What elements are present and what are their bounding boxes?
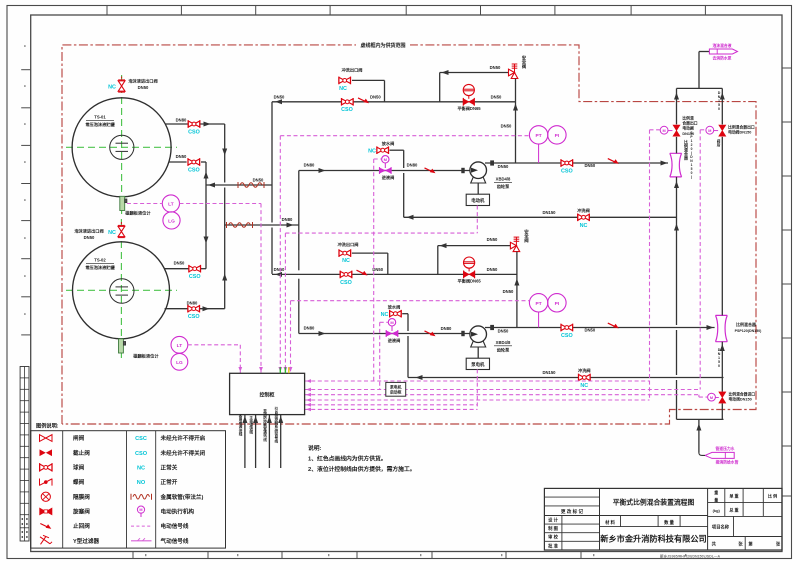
svg-text:气动信号线: 气动信号线	[160, 537, 189, 545]
svg-text:更 改 标 记: 更 改 标 记	[561, 508, 584, 515]
svg-text:M: M	[708, 129, 711, 133]
svg-text:平衡式比例混合装置流程图: 平衡式比例混合装置流程图	[613, 498, 695, 507]
svg-text:DN150: DN150	[542, 210, 556, 215]
svg-text:DN80: DN80	[187, 300, 198, 305]
svg-text:PT: PT	[536, 301, 542, 307]
svg-text:比例混合器: 比例混合器	[683, 139, 689, 161]
svg-text:XBD4/8: XBD4/8	[496, 177, 511, 182]
svg-text:至消防控制室通讯线: 至消防控制室通讯线	[262, 408, 267, 442]
svg-text:常压泡沫液贮罐: 常压泡沫液贮罐	[85, 121, 115, 128]
svg-text:管道压力水: 管道压力水	[716, 446, 735, 451]
svg-text:接消防给水管: 接消防给水管	[715, 460, 739, 465]
svg-text:PSP120(DN150): PSP120(DN150)	[735, 329, 763, 333]
svg-text:NC: NC	[381, 312, 389, 318]
svg-text:NC: NC	[108, 230, 116, 236]
svg-text:PT: PT	[536, 133, 542, 139]
svg-text:泡沫液进出口阀: 泡沫液进出口阀	[74, 228, 103, 235]
svg-text:Y型过滤器: Y型过滤器	[73, 537, 100, 545]
svg-text:CSO: CSO	[188, 168, 200, 174]
svg-text:备用电源进线: 备用电源进线	[238, 413, 243, 436]
svg-text:DN50: DN50	[370, 95, 381, 100]
svg-text:DN50: DN50	[487, 237, 498, 242]
svg-text:DN80: DN80	[282, 217, 293, 222]
svg-text:TS-01: TS-01	[94, 115, 106, 120]
svg-text:隔膜阀: 隔膜阀	[73, 493, 90, 501]
svg-text:CSO: CSO	[188, 314, 200, 320]
svg-text:DN50: DN50	[491, 94, 502, 99]
svg-text:DN150: DN150	[682, 132, 694, 136]
svg-text:冲洗阀: 冲洗阀	[578, 367, 591, 374]
svg-text:M: M	[710, 396, 713, 400]
svg-text:设 计: 设 计	[548, 517, 558, 524]
svg-text:LG: LG	[176, 360, 183, 366]
svg-text:说明:: 说明:	[308, 444, 322, 452]
svg-text:闸阀: 闸阀	[73, 434, 85, 442]
svg-text:安全阀: 安全阀	[524, 228, 530, 244]
svg-text:DN80: DN80	[304, 163, 315, 168]
svg-text:引自动控制系统信号线: 引自动控制系统信号线	[274, 406, 279, 443]
svg-text:材 料: 材 料	[605, 519, 615, 526]
svg-text:CSC: CSC	[135, 436, 147, 442]
svg-text:球阀: 球阀	[73, 464, 85, 472]
svg-text:NC: NC	[580, 223, 588, 229]
svg-text:DN50: DN50	[501, 124, 512, 129]
svg-text:电动阀DN150: 电动阀DN150	[729, 396, 752, 401]
svg-text:齿轮泵: 齿轮泵	[497, 347, 510, 354]
svg-text:蝶阀: 蝶阀	[73, 478, 85, 486]
svg-text:审 校: 审 校	[548, 534, 558, 541]
svg-text:NC: NC	[368, 149, 376, 155]
svg-text:泵电机: 泵电机	[471, 361, 485, 368]
svg-text:批 准: 批 准	[548, 542, 558, 549]
svg-text:DN50: DN50	[84, 235, 95, 240]
svg-text:DN50: DN50	[253, 178, 264, 183]
svg-text:DN50: DN50	[503, 289, 514, 294]
svg-text:主电源进线: 主电源进线	[248, 415, 253, 434]
svg-text:电动机: 电动机	[471, 197, 485, 204]
svg-text:重: 重	[714, 490, 718, 495]
svg-text:DN150: DN150	[717, 348, 721, 368]
svg-text:新乡市金升消防科技有限公司: 新乡市金升消防科技有限公司	[600, 534, 706, 544]
svg-text:泡沫液进出口阀: 泡沫液进出口阀	[128, 78, 157, 85]
svg-text:CSO: CSO	[341, 107, 353, 113]
svg-text:冲洗阀: 冲洗阀	[577, 207, 590, 214]
svg-text:平衡阀DN65: 平衡阀DN65	[457, 105, 481, 112]
svg-text:LT: LT	[177, 343, 183, 349]
svg-text:比例混合器进口: 比例混合器进口	[729, 391, 756, 396]
svg-text:DN150: DN150	[717, 91, 721, 111]
svg-text:正常开: 正常开	[161, 478, 178, 486]
svg-text:去消防水泵: 去消防水泵	[713, 56, 732, 61]
svg-text:第: 第	[748, 541, 753, 548]
svg-text:未经允许不得开启: 未经允许不得开启	[161, 434, 206, 442]
svg-text:DN50: DN50	[176, 154, 187, 159]
svg-text:TS-02: TS-02	[94, 258, 106, 263]
svg-text:DN50: DN50	[584, 163, 595, 168]
svg-text:比 例: 比 例	[768, 493, 777, 499]
svg-text:项目名称: 项目名称	[712, 524, 730, 531]
svg-text:NC: NC	[580, 383, 588, 389]
svg-text:2、液位计控制线由供方提供，需方施工。: 2、液位计控制线由供方提供，需方施工。	[308, 465, 416, 473]
svg-text:DN50: DN50	[274, 94, 285, 99]
svg-text:DN80: DN80	[176, 117, 187, 122]
svg-text:阀后: 阀后	[716, 139, 721, 148]
svg-text:DN50: DN50	[138, 85, 149, 90]
svg-text:M: M	[139, 508, 142, 512]
svg-text:(kg): (kg)	[713, 508, 721, 513]
svg-text:电动执行机构: 电动执行机构	[161, 508, 195, 516]
svg-text:比例混合器出口: 比例混合器出口	[728, 125, 755, 130]
svg-text:PI: PI	[555, 133, 560, 139]
svg-text:总 重: 总 重	[729, 507, 738, 513]
svg-text:DN80: DN80	[441, 326, 452, 331]
svg-text:泵电机: 泵电机	[389, 384, 402, 389]
svg-text:DN150: DN150	[542, 370, 556, 375]
svg-text:新乡JS965/RHPI20(DN150)JSDL—A: 新乡JS965/RHPI20(DN150)JSDL—A	[660, 553, 721, 558]
svg-text:CSO: CSO	[189, 274, 201, 280]
svg-text:控制柜: 控制柜	[259, 391, 274, 398]
svg-text:单 重: 单 重	[729, 493, 738, 499]
svg-text:DN50: DN50	[584, 328, 595, 333]
svg-text:DN50: DN50	[498, 328, 509, 333]
svg-text:NO: NO	[137, 480, 146, 486]
svg-text:比例混合器: 比例混合器	[736, 321, 757, 327]
svg-text:虚线框内为供货范围: 虚线框内为供货范围	[360, 42, 405, 49]
svg-text:电动阀DN150: 电动阀DN150	[728, 130, 751, 135]
svg-text:冲洗出口阀: 冲洗出口阀	[342, 67, 363, 74]
svg-text:CSO: CSO	[340, 280, 352, 286]
svg-text:电动信号线: 电动信号线	[161, 522, 189, 530]
svg-text:截止阀: 截止阀	[73, 449, 90, 457]
svg-text:泡沫混合液: 泡沫混合液	[713, 43, 732, 48]
svg-text:M: M	[663, 129, 666, 133]
svg-text:放水阀: 放水阀	[387, 304, 401, 311]
svg-text:冲洗出口阀: 冲洗出口阀	[338, 241, 359, 248]
svg-text:合器出口: 合器出口	[681, 121, 697, 126]
svg-text:放水阀: 放水阀	[381, 140, 395, 147]
svg-text:LT: LT	[168, 202, 174, 208]
svg-text:张: 张	[776, 541, 781, 548]
svg-text:比例混: 比例混	[682, 116, 694, 121]
svg-text:齿轮泵: 齿轮泵	[497, 183, 510, 190]
svg-text:LG: LG	[168, 218, 175, 224]
svg-text:NC: NC	[339, 86, 347, 92]
svg-text:DN50: DN50	[274, 267, 285, 272]
svg-text:共: 共	[712, 541, 717, 548]
svg-text:启动柜: 启动柜	[390, 390, 402, 395]
svg-text:CSO: CSO	[135, 451, 148, 457]
svg-text:NC: NC	[342, 258, 350, 264]
svg-text:DN50: DN50	[498, 164, 509, 169]
svg-text:NC: NC	[137, 466, 145, 472]
svg-text:NC: NC	[108, 85, 116, 91]
svg-text:止回阀: 止回阀	[73, 522, 90, 530]
svg-text:平衡阀DN65: 平衡阀DN65	[457, 277, 481, 284]
svg-text:常压泡沫液贮罐: 常压泡沫液贮罐	[85, 264, 115, 271]
svg-text:CSO: CSO	[188, 130, 200, 136]
svg-text:安全阀: 安全阀	[521, 54, 527, 70]
svg-text:PI: PI	[555, 301, 560, 307]
svg-text:进液阀: 进液阀	[382, 174, 395, 181]
svg-text:量: 量	[714, 498, 718, 503]
svg-text:DN80: DN80	[304, 326, 315, 331]
svg-text:未经允许不得关闭: 未经允许不得关闭	[161, 449, 206, 457]
svg-text:电动阀: 电动阀	[682, 126, 694, 131]
svg-text:CSO: CSO	[561, 333, 573, 339]
svg-text:DN50: DN50	[174, 261, 185, 266]
svg-text:CSO: CSO	[561, 169, 573, 175]
svg-text:旋塞阀: 旋塞阀	[72, 508, 90, 516]
svg-text:DN80: DN80	[407, 162, 418, 167]
svg-text:正常关: 正常关	[161, 464, 178, 472]
svg-text:数 量: 数 量	[664, 519, 674, 526]
svg-text:金属软管(带法兰): 金属软管(带法兰)	[160, 493, 204, 501]
svg-text:张: 张	[738, 541, 743, 548]
svg-text:磁翻板液位计: 磁翻板液位计	[132, 353, 159, 360]
svg-text:DN50: DN50	[487, 267, 498, 272]
svg-text:1、红色点画线内为供方供货。: 1、红色点画线内为供方供货。	[308, 455, 387, 463]
svg-text:XBD4/8: XBD4/8	[496, 340, 511, 345]
svg-text:图例说明:: 图例说明:	[36, 422, 59, 430]
svg-text:DN50: DN50	[490, 65, 501, 70]
svg-text:制 图: 制 图	[548, 525, 558, 532]
svg-text:磁翻板液位计: 磁翻板液位计	[124, 210, 151, 217]
svg-text:进液阀: 进液阀	[388, 337, 401, 344]
